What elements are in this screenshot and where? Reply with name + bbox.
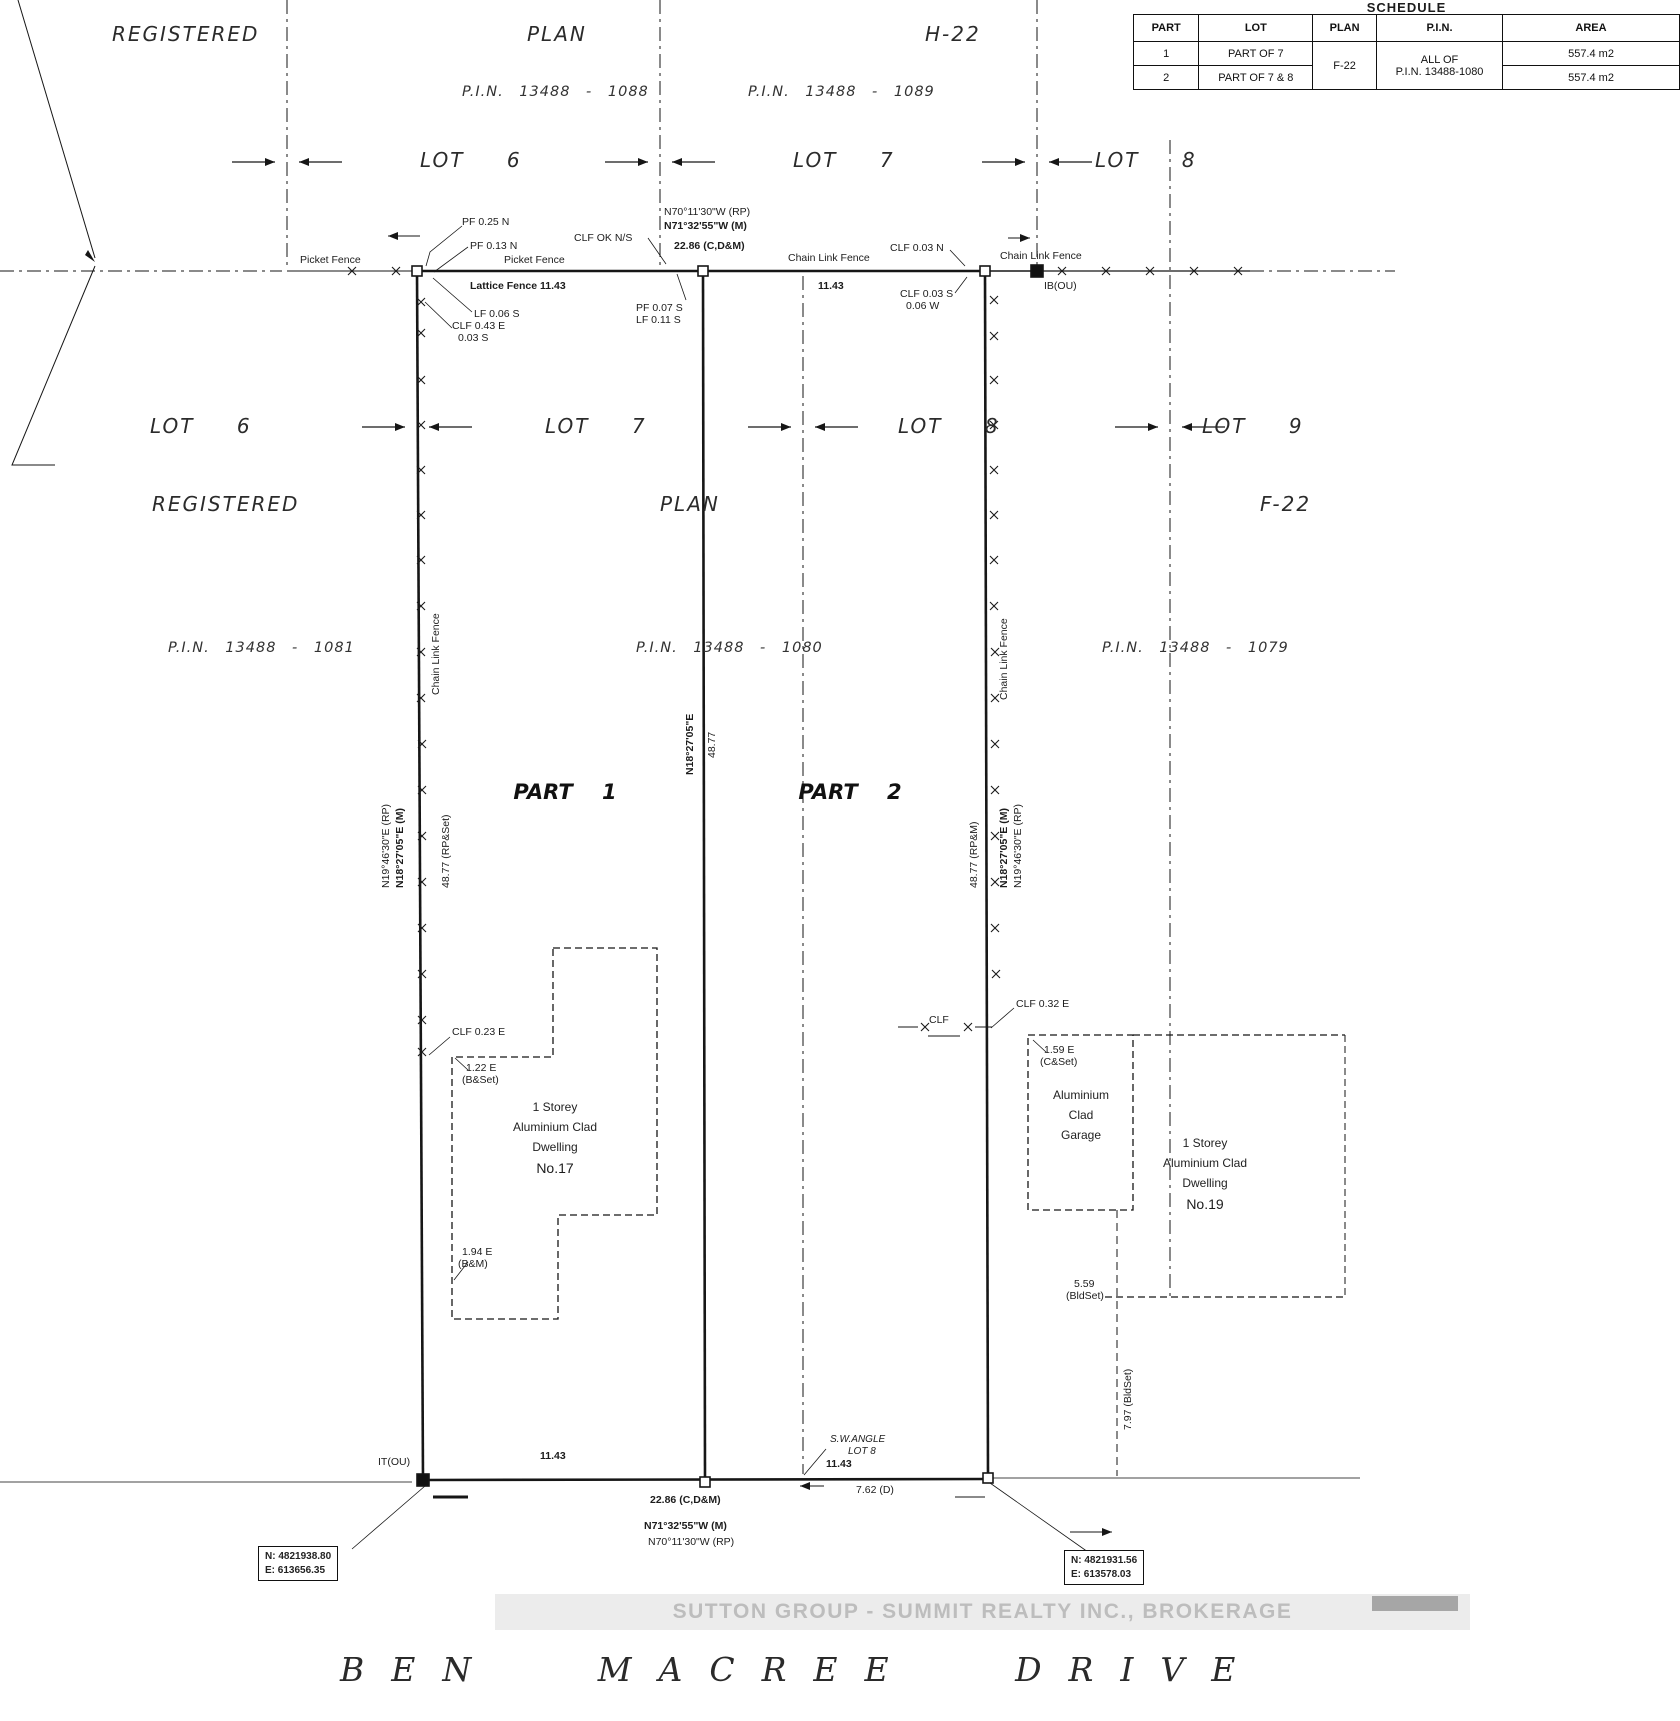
margin-diagonal-line <box>18 0 95 258</box>
schedule-pin-line2: P.I.N. 13488-1080 <box>1381 66 1498 78</box>
leader-sw-angle <box>804 1449 826 1475</box>
fence-note-clf023: CLF 0.23 E <box>452 1026 505 1038</box>
leader-clf023 <box>429 1037 450 1055</box>
dwelling-19-number: No.19 <box>1140 1196 1270 1212</box>
offset-122b: (B&Set) <box>462 1074 499 1086</box>
bearing-top-m: N71°32'55"W (M) <box>664 220 747 232</box>
bearing-west-m: N18°27'05"E (M) <box>394 808 406 888</box>
schedule-plan-value: F-22 <box>1313 42 1377 90</box>
schedule-header-pin: P.I.N. <box>1376 15 1502 42</box>
clf-stub-line <box>898 1027 992 1036</box>
coordinate-box-left: N: 4821938.80 E: 613656.35 <box>258 1546 338 1581</box>
offset-122: 1.22 E <box>466 1062 496 1074</box>
dwelling-17-number: No.17 <box>495 1160 615 1176</box>
garage-line1: Aluminium <box>1038 1088 1124 1102</box>
leader-coord-right <box>990 1483 1088 1552</box>
leader-pf007 <box>677 274 686 300</box>
dwelling-17-line1: 1 Storey <box>495 1100 615 1114</box>
brokerage-watermark: SUTTON GROUP - SUMMIT REALTY INC., BROKE… <box>495 1594 1470 1630</box>
leader-clf043 <box>425 302 452 328</box>
offset-559: 5.59 <box>1074 1278 1094 1290</box>
offset-159b: (C&Set) <box>1040 1056 1077 1068</box>
brokerage-watermark-text: SUTTON GROUP - SUMMIT REALTY INC., BROKE… <box>673 1600 1293 1624</box>
bearing-centre: N18°27'05"E <box>684 714 696 775</box>
clf-stub-label: CLF <box>929 1014 949 1026</box>
schedule-area-1: 557.4 m2 <box>1503 42 1680 66</box>
schedule-lot-1: PART OF 7 <box>1199 42 1313 66</box>
tick-arrowhead <box>1020 234 1030 242</box>
chain-link-fence-label-2: Chain Link Fence <box>1000 250 1082 262</box>
fence-note-clf-ok: CLF OK N/S <box>574 232 632 244</box>
pin-13488-1079: P.I.N. 13488 - 1079 <box>1102 640 1289 656</box>
offset-559b: (BldSet) <box>1066 1290 1104 1302</box>
picket-fence-label-left: Picket Fence <box>300 254 361 266</box>
survey-plan-page: REGISTERED PLAN H-22 P.I.N. 13488 - 1088… <box>0 0 1680 1721</box>
schedule-lot-2: PART OF 7 & 8 <box>1199 66 1313 90</box>
leader-pf013 <box>434 247 468 272</box>
sw-angle-label-1: S.W.ANGLE <box>830 1434 885 1445</box>
offset-194: 1.94 E <box>462 1246 492 1258</box>
chain-link-fence-label-east: Chain Link Fence <box>998 618 1010 700</box>
distance-east-4877: 48.77 (RP&M) <box>968 821 980 888</box>
schedule-header-row: PART LOT PLAN P.I.N. AREA <box>1134 15 1680 42</box>
dwelling-17-line3: Dwelling <box>495 1140 615 1154</box>
plan-title-h22: H-22 <box>925 22 981 46</box>
leader-lf006 <box>433 278 472 312</box>
fence-note-clf043: CLF 0.43 E <box>452 320 505 332</box>
pin-13488-1089: P.I.N. 13488 - 1089 <box>748 84 935 100</box>
pin-13488-1080: P.I.N. 13488 - 1080 <box>636 640 823 656</box>
fence-note-006w: 0.06 W <box>906 300 939 312</box>
plan-title-plan: PLAN <box>527 22 587 46</box>
schedule-part-2: 2 <box>1134 66 1199 90</box>
garage-line3: Garage <box>1038 1128 1124 1142</box>
schedule-header-area: AREA <box>1503 15 1680 42</box>
fence-note-clf003s: CLF 0.03 S <box>900 288 953 300</box>
fence-note-pf013: PF 0.13 N <box>470 240 517 252</box>
fence-note-clf032: CLF 0.32 E <box>1016 998 1069 1010</box>
tick-arrowhead <box>1102 1528 1112 1536</box>
schedule-row-1: 1 PART OF 7 F-22 ALL OF P.I.N. 13488-108… <box>1134 42 1680 66</box>
fence-note-lf006: LF 0.06 S <box>474 308 520 320</box>
west-boundary <box>417 271 423 1480</box>
lot-9-mid-label: LOT 9 <box>1202 414 1304 438</box>
fence-x-marks <box>348 267 1242 1056</box>
monument-ib-ou: IB(OU) <box>1044 280 1077 292</box>
margin-diagonal-line <box>12 266 95 465</box>
distance-1143-top: 11.43 <box>818 280 844 292</box>
distance-top-2286: 22.86 (C,D&M) <box>674 240 745 252</box>
schedule-header-plan: PLAN <box>1313 15 1377 42</box>
leader-pf025 <box>426 226 462 266</box>
chain-link-fence-label-west: Chain Link Fence <box>430 613 442 695</box>
distance-2286-bottom: 22.86 (C,D&M) <box>650 1494 721 1506</box>
offset-194b: (B&M) <box>458 1258 488 1270</box>
east-boundary <box>985 271 988 1478</box>
schedule-area-2: 557.4 m2 <box>1503 66 1680 90</box>
distance-west-4877: 48.77 (RP&Set) <box>440 814 452 888</box>
registered-mid-label: REGISTERED <box>152 492 299 516</box>
fence-note-pf025: PF 0.25 N <box>462 216 509 228</box>
coordinate-right-northing: N: 4821931.56 <box>1071 1554 1137 1568</box>
distance-762: 7.62 (D) <box>856 1484 894 1496</box>
coordinate-left-northing: N: 4821938.80 <box>265 1550 331 1564</box>
watermark-smudge <box>1372 1596 1458 1611</box>
f22-mid-label: F-22 <box>1260 492 1311 516</box>
bearing-top-rp: N70°11'30"W (RP) <box>664 206 750 218</box>
dwelling-19-line2: Aluminium Clad <box>1140 1156 1270 1170</box>
leader-clfok <box>648 238 666 264</box>
part-1-label: PART 1 <box>500 780 630 804</box>
bearing-east-rp: N19°46'30"E (RP) <box>1012 804 1024 888</box>
fence-note-lf011: LF 0.11 S <box>636 314 681 326</box>
leader-coord-left <box>352 1486 425 1549</box>
pin-13488-1088: P.I.N. 13488 - 1088 <box>462 84 649 100</box>
dwelling-19-line3: Dwelling <box>1140 1176 1270 1190</box>
chain-link-fence-label-1: Chain Link Fence <box>788 252 870 264</box>
schedule-table: PART LOT PLAN P.I.N. AREA 1 PART OF 7 F-… <box>1133 14 1680 90</box>
lot-6-mid-label: LOT 6 <box>150 414 252 438</box>
bearing-east-m: N18°27'05"E (M) <box>998 808 1010 888</box>
lot-7-mid-label: LOT 7 <box>545 414 647 438</box>
distance-1143-bottom-right: 11.43 <box>826 1458 852 1470</box>
tick-arrowhead <box>800 1482 810 1490</box>
garage-line2: Clad <box>1038 1108 1124 1122</box>
bearing-west-rp: N19°46'30"E (RP) <box>380 804 392 888</box>
fence-note-clf043b: 0.03 S <box>458 332 488 344</box>
dwelling-17-line2: Aluminium Clad <box>495 1120 615 1134</box>
schedule-pin-cell: ALL OF P.I.N. 13488-1080 <box>1376 42 1502 90</box>
leader-clf003s <box>955 277 967 293</box>
survey-monuments <box>412 265 1043 1487</box>
bearing-bottom-m: N71°32'55"W (M) <box>644 1520 727 1532</box>
street-name: BEN MACREE DRIVE <box>340 1650 1262 1689</box>
schedule-title: SCHEDULE <box>1133 0 1680 15</box>
picket-fence-label-right: Picket Fence <box>504 254 565 266</box>
lot-6-top-label: LOT 6 <box>420 148 522 172</box>
lot-7-top-label: LOT 7 <box>793 148 895 172</box>
leader-clf032 <box>991 1008 1014 1028</box>
bearing-bottom-rp: N70°11'30"W (RP) <box>648 1536 734 1548</box>
fence-note-pf007: PF 0.07 S <box>636 302 683 314</box>
distance-1143-bottom-left: 11.43 <box>540 1450 566 1462</box>
sw-angle-label-2: LOT 8 <box>848 1446 876 1457</box>
tick-arrowhead <box>388 232 398 240</box>
lattice-fence-label: Lattice Fence 11.43 <box>470 280 566 292</box>
plan-mid-label: PLAN <box>660 492 720 516</box>
lot-8-mid-label: LOT 8 <box>898 414 1000 438</box>
part-2-label: PART 2 <box>785 780 915 804</box>
part-division-line <box>703 271 705 1482</box>
dwelling-19-line1: 1 Storey <box>1140 1136 1270 1150</box>
coordinate-left-easting: E: 613656.35 <box>265 1564 331 1578</box>
coordinate-box-right: N: 4821931.56 E: 613578.03 <box>1064 1550 1144 1585</box>
fence-note-clf003n: CLF 0.03 N <box>890 242 944 254</box>
coordinate-right-easting: E: 613578.03 <box>1071 1568 1137 1582</box>
leader-clf003n <box>950 250 965 266</box>
schedule-part-1: 1 <box>1134 42 1199 66</box>
schedule-header-part: PART <box>1134 15 1199 42</box>
monument-it-ou: IT(OU) <box>378 1456 410 1468</box>
schedule-header-lot: LOT <box>1199 15 1313 42</box>
schedule-pin-line1: ALL OF <box>1381 54 1498 66</box>
lot-dimension-arrows <box>232 158 1225 431</box>
lot-8-top-label: LOT 8 <box>1095 148 1197 172</box>
pin-13488-1081: P.I.N. 13488 - 1081 <box>168 640 355 656</box>
offset-797: 7.97 (BldSet) <box>1122 1369 1134 1430</box>
offset-159: 1.59 E <box>1044 1044 1074 1056</box>
distance-centre-4877: 48.77 <box>706 732 718 758</box>
plan-title-registered: REGISTERED <box>112 22 259 46</box>
